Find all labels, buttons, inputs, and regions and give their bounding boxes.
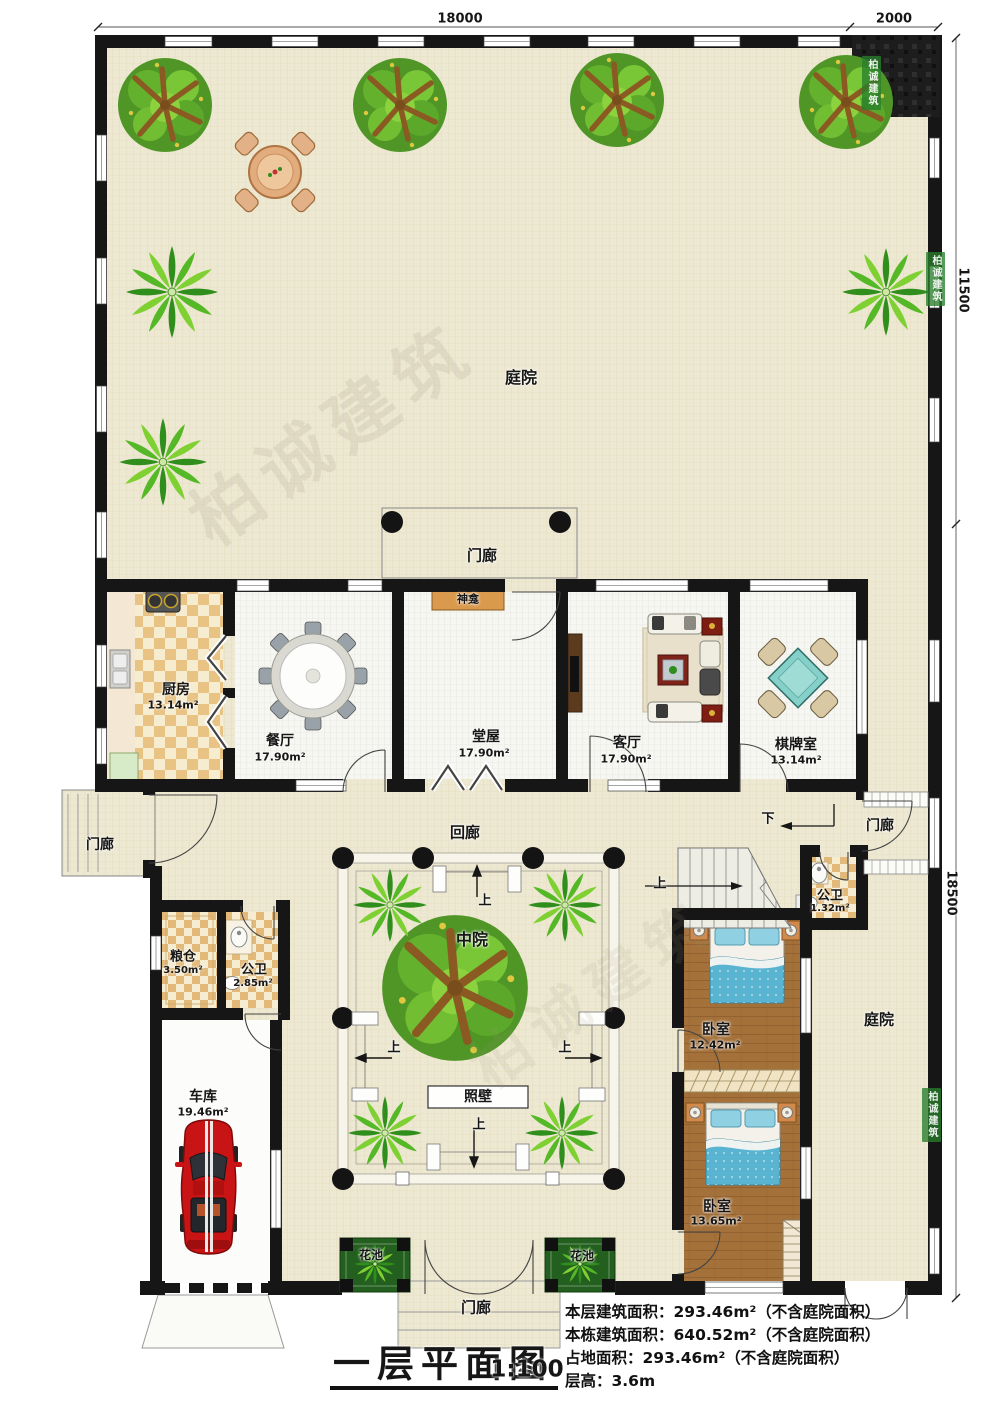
room-bedroom-a-area: 12.42m² [689, 1040, 740, 1051]
room-garage-area: 19.46m² [177, 1107, 228, 1118]
room-wc-mini-area: 1.32m² [810, 904, 849, 914]
room-wc-small-name: 公卫 [241, 964, 267, 977]
room-living-name: 客厅 [613, 736, 641, 750]
label-porch-left: 门廊 [86, 838, 114, 852]
label-porch-right: 门廊 [866, 819, 894, 833]
room-dining-name: 餐厅 [266, 734, 294, 748]
label-courtyard-right: 庭院 [864, 1013, 894, 1028]
dim-right-lower: 18500 [945, 870, 958, 915]
label-shrine: 神龛 [457, 594, 479, 605]
room-hall-name: 堂屋 [472, 730, 500, 744]
label-courtyard-top: 庭院 [505, 370, 537, 386]
watermark: 柏诚建筑 [926, 252, 945, 306]
room-chess-name: 棋牌室 [775, 738, 817, 752]
page-title-scale: 1:100 [490, 1359, 563, 1382]
room-bedroom-b-area: 13.65m² [690, 1216, 741, 1227]
note-building-area: 本栋建筑面积：640.52m²（不含庭院面积） [565, 1323, 880, 1345]
floor-plan-page: 柏诚建筑 柏诚建筑 柏诚建筑 柏诚建筑 柏诚建筑 18000 2000 1150… [0, 0, 1000, 1414]
label-screen-wall: 照壁 [464, 1090, 492, 1104]
label-up-stairs: 上 [653, 878, 666, 891]
armchair-icon [700, 641, 720, 667]
title-underline [330, 1386, 558, 1390]
label-porch-top: 门廊 [467, 549, 497, 564]
label-flower-bed-left: 花池 [359, 1249, 383, 1261]
label-porch-bottom: 门廊 [461, 1301, 491, 1316]
dim-top-right: 2000 [876, 13, 912, 26]
room-granary-area: 3.50m² [163, 966, 202, 976]
room-bedroom-b-name: 卧室 [703, 1200, 731, 1214]
label-corridor: 回廊 [450, 826, 480, 841]
label-up-north: 上 [478, 895, 491, 908]
room-wc-small-area: 2.85m² [233, 979, 272, 989]
label-up-east: 上 [558, 1042, 571, 1055]
label-up-south: 上 [472, 1119, 485, 1132]
room-living-area: 17.90m² [600, 754, 651, 765]
room-chess-area: 13.14m² [770, 755, 821, 766]
room-wc-mini-name: 公卫 [817, 890, 843, 903]
label-mid-court: 中院 [456, 932, 488, 948]
room-kitchen-area: 13.14m² [147, 700, 198, 711]
room-dining-area: 17.90m² [254, 752, 305, 763]
watermark: 柏诚建筑 [922, 1088, 941, 1142]
note-land-area: 占地面积：293.46m²（不含庭院面积） [565, 1346, 849, 1368]
label-flower-bed-right: 花池 [570, 1250, 594, 1262]
dining-table-icon [259, 622, 367, 730]
car-icon [175, 1120, 242, 1254]
armchair-icon [700, 669, 720, 695]
watermark: 柏诚建筑 [862, 56, 881, 110]
room-garage-name: 车库 [189, 1090, 217, 1104]
note-storey-height: 层高：3.6m [565, 1369, 655, 1391]
room-bedroom-a-name: 卧室 [702, 1023, 730, 1037]
label-down: 下 [761, 813, 774, 826]
note-floor-area: 本层建筑面积：293.46m²（不含庭院面积） [565, 1300, 880, 1322]
room-granary-name: 粮仓 [170, 951, 196, 964]
dim-top: 18000 [437, 13, 482, 26]
label-up-west: 上 [387, 1042, 400, 1055]
dim-right-upper: 11500 [957, 267, 970, 312]
room-hall-area: 17.90m² [458, 748, 509, 759]
room-kitchen-name: 厨房 [162, 683, 190, 697]
